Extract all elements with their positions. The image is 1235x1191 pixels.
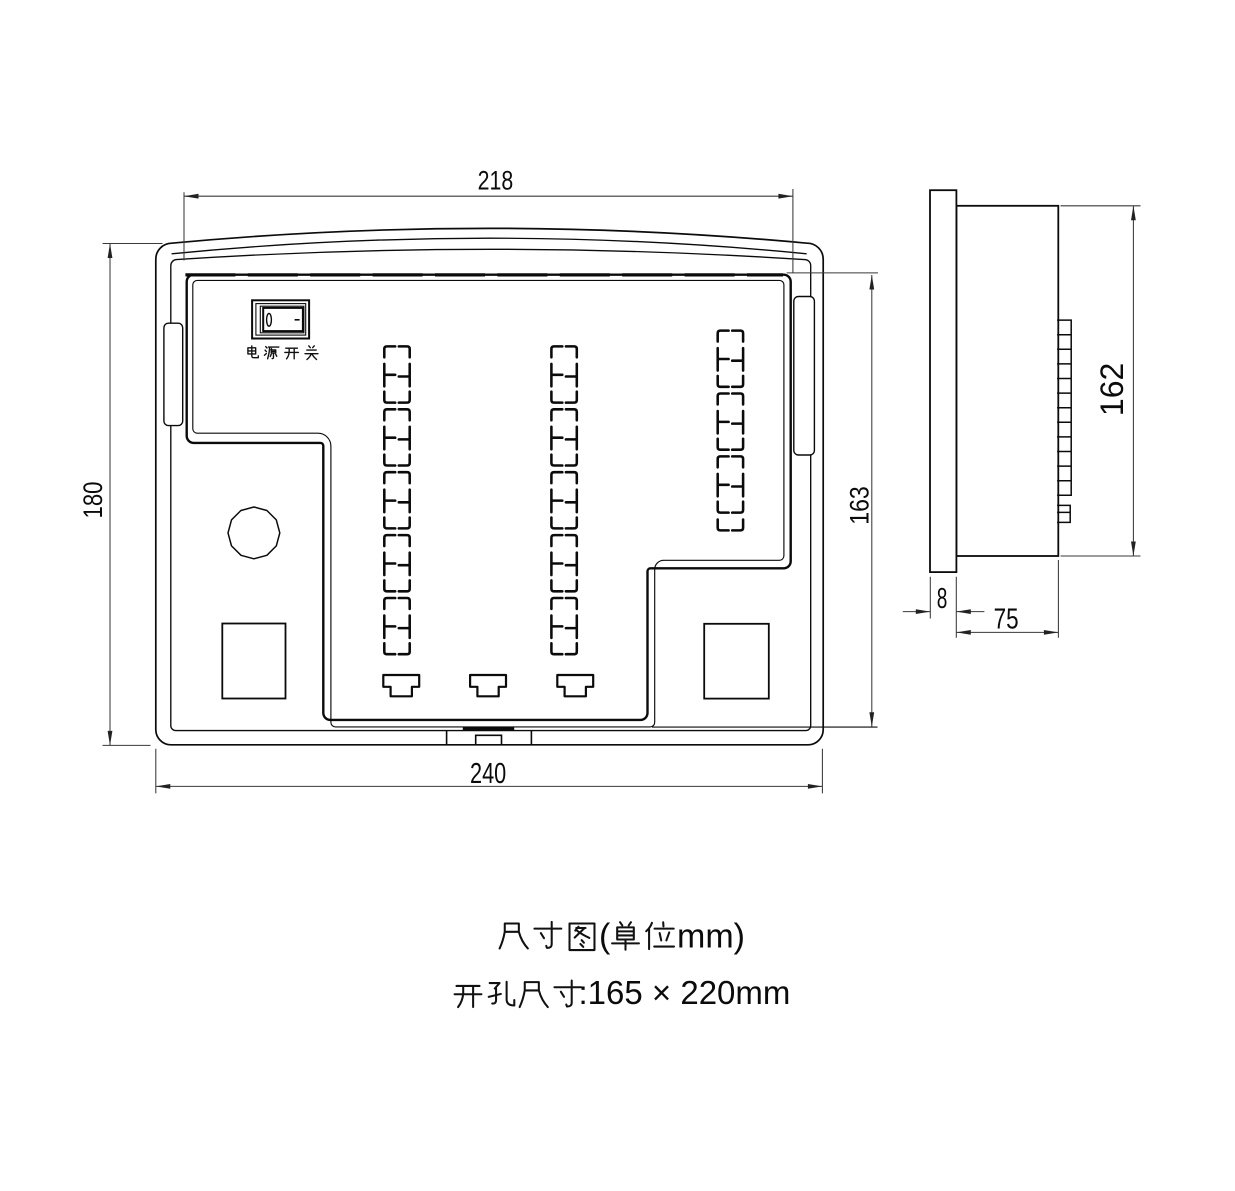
svg-text:8: 8 [937, 583, 948, 615]
svg-text:mm): mm) [677, 917, 745, 955]
svg-text::165 × 220mm: :165 × 220mm [579, 974, 791, 1011]
svg-text:180: 180 [78, 482, 108, 519]
svg-text:163: 163 [845, 486, 875, 525]
svg-text:240: 240 [470, 758, 506, 790]
svg-text:218: 218 [478, 166, 514, 196]
svg-text:75: 75 [994, 603, 1019, 635]
svg-text:(: ( [599, 917, 611, 955]
svg-text:162: 162 [1094, 363, 1130, 416]
